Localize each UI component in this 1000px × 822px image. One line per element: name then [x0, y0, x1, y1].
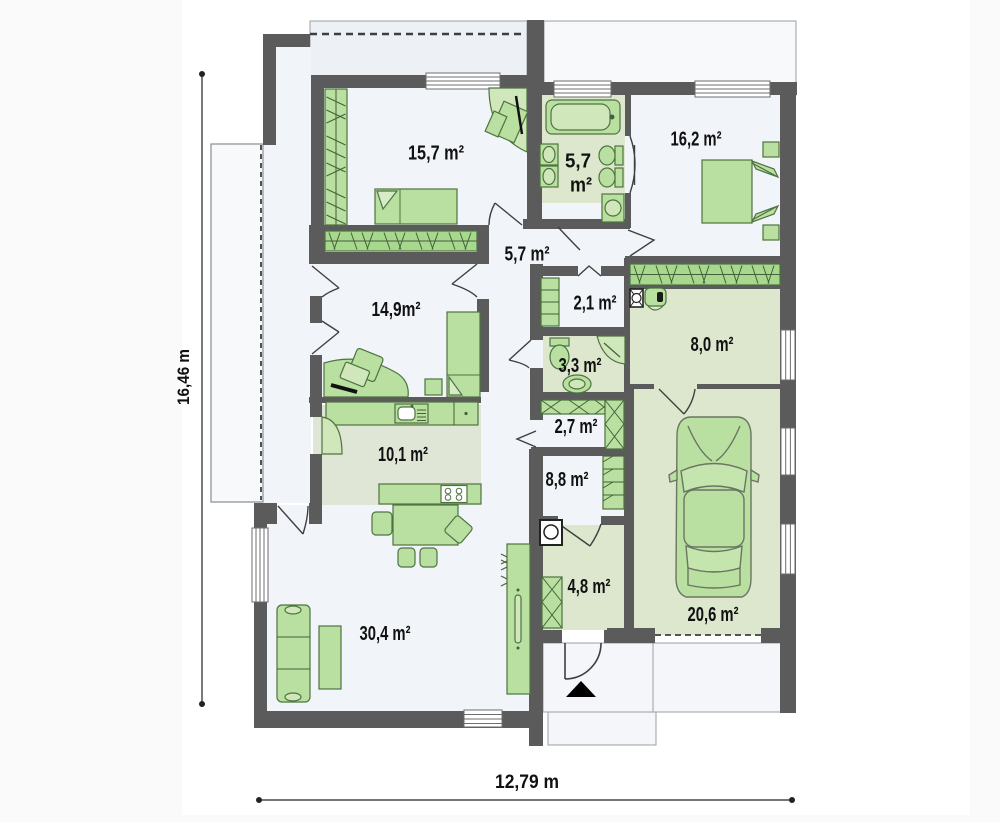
svg-text:20,6 m²: 20,6 m² — [688, 603, 739, 626]
svg-text:m²: m² — [570, 174, 592, 197]
svg-text:2,7 m²: 2,7 m² — [555, 415, 598, 438]
svg-text:3,3 m²: 3,3 m² — [559, 354, 602, 377]
svg-text:12,79 m: 12,79 m — [495, 772, 559, 793]
svg-text:16,2 m²: 16,2 m² — [671, 128, 722, 151]
svg-text:8,8 m²: 8,8 m² — [546, 468, 589, 491]
svg-text:30,4 m²: 30,4 m² — [360, 622, 411, 645]
svg-text:15,7 m²: 15,7 m² — [408, 142, 464, 165]
svg-text:8,0 m²: 8,0 m² — [691, 333, 734, 356]
svg-text:5,7: 5,7 — [565, 150, 591, 173]
svg-text:16,46 m: 16,46 m — [175, 349, 193, 405]
svg-text:2,1 m²: 2,1 m² — [574, 292, 617, 315]
svg-text:5,7 m²: 5,7 m² — [505, 243, 550, 266]
svg-text:4,8 m²: 4,8 m² — [568, 575, 611, 598]
svg-text:10,1 m²: 10,1 m² — [378, 443, 428, 466]
svg-text:14,9m²: 14,9m² — [372, 298, 421, 321]
